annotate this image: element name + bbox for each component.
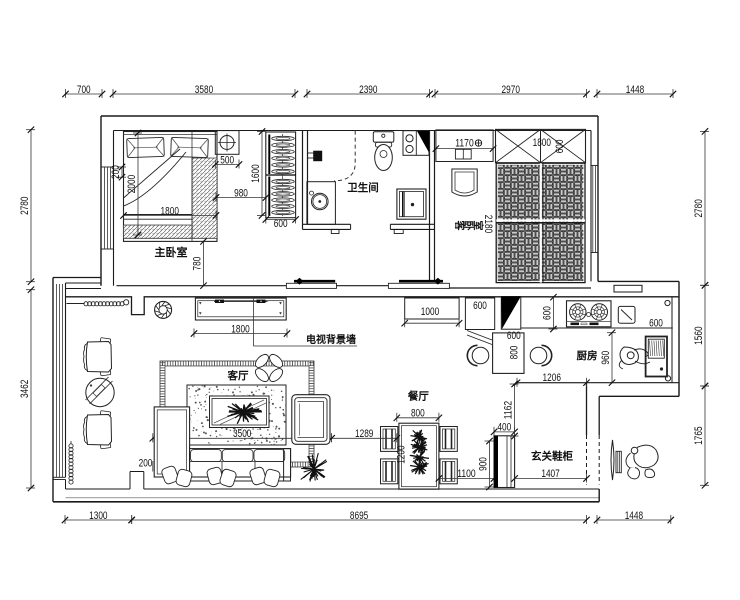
svg-text:780: 780	[192, 257, 204, 271]
svg-text:餐厅: 餐厅	[407, 390, 429, 403]
svg-text:200: 200	[139, 458, 153, 470]
svg-text:400: 400	[497, 422, 511, 434]
svg-text:1800: 1800	[533, 137, 551, 149]
svg-text:3500: 3500	[233, 428, 251, 440]
svg-text:3462: 3462	[19, 380, 31, 398]
svg-text:1200: 1200	[396, 445, 408, 463]
svg-text:960: 960	[600, 351, 612, 365]
svg-text:700: 700	[77, 84, 91, 96]
svg-text:600: 600	[274, 218, 288, 230]
svg-text:600: 600	[473, 300, 487, 312]
svg-text:2970: 2970	[502, 84, 520, 96]
svg-text:600: 600	[554, 140, 566, 154]
svg-text:电视背景墙: 电视背景墙	[306, 333, 356, 346]
svg-text:1162: 1162	[503, 401, 515, 419]
svg-text:1600: 1600	[250, 164, 262, 182]
svg-text:玄关鞋柜: 玄关鞋柜	[531, 450, 573, 463]
svg-text:1448: 1448	[626, 84, 644, 96]
svg-text:600: 600	[541, 306, 553, 320]
svg-text:1300: 1300	[89, 510, 107, 522]
svg-text:厨房: 厨房	[577, 349, 598, 362]
svg-text:1800: 1800	[231, 323, 249, 335]
svg-text:1800: 1800	[161, 205, 179, 217]
svg-text:1560: 1560	[693, 326, 705, 344]
svg-text:2390: 2390	[359, 84, 377, 96]
svg-text:600: 600	[649, 318, 663, 330]
svg-text:主卧室: 主卧室	[155, 245, 188, 259]
svg-text:1206: 1206	[543, 372, 561, 384]
svg-text:800: 800	[411, 408, 425, 420]
svg-text:8695: 8695	[350, 510, 368, 522]
svg-text:2780: 2780	[693, 199, 705, 217]
svg-text:800: 800	[509, 346, 521, 360]
svg-text:2780: 2780	[19, 197, 31, 215]
svg-text:3580: 3580	[195, 84, 213, 96]
svg-text:2180: 2180	[482, 215, 494, 233]
svg-text:1448: 1448	[625, 510, 643, 522]
svg-text:1100: 1100	[457, 468, 475, 480]
svg-text:1170: 1170	[455, 138, 473, 150]
svg-text:2000: 2000	[126, 175, 138, 193]
svg-text:600: 600	[507, 330, 521, 342]
svg-text:1289: 1289	[355, 428, 373, 440]
svg-text:卫生间: 卫生间	[347, 181, 379, 194]
svg-text:900: 900	[478, 457, 490, 471]
svg-text:1765: 1765	[693, 426, 705, 444]
svg-text:500: 500	[220, 154, 234, 166]
svg-text:1000: 1000	[421, 306, 439, 318]
svg-text:200: 200	[110, 165, 122, 179]
svg-text:980: 980	[234, 187, 248, 199]
svg-text:客厅: 客厅	[227, 369, 249, 382]
svg-text:1407: 1407	[541, 468, 559, 480]
